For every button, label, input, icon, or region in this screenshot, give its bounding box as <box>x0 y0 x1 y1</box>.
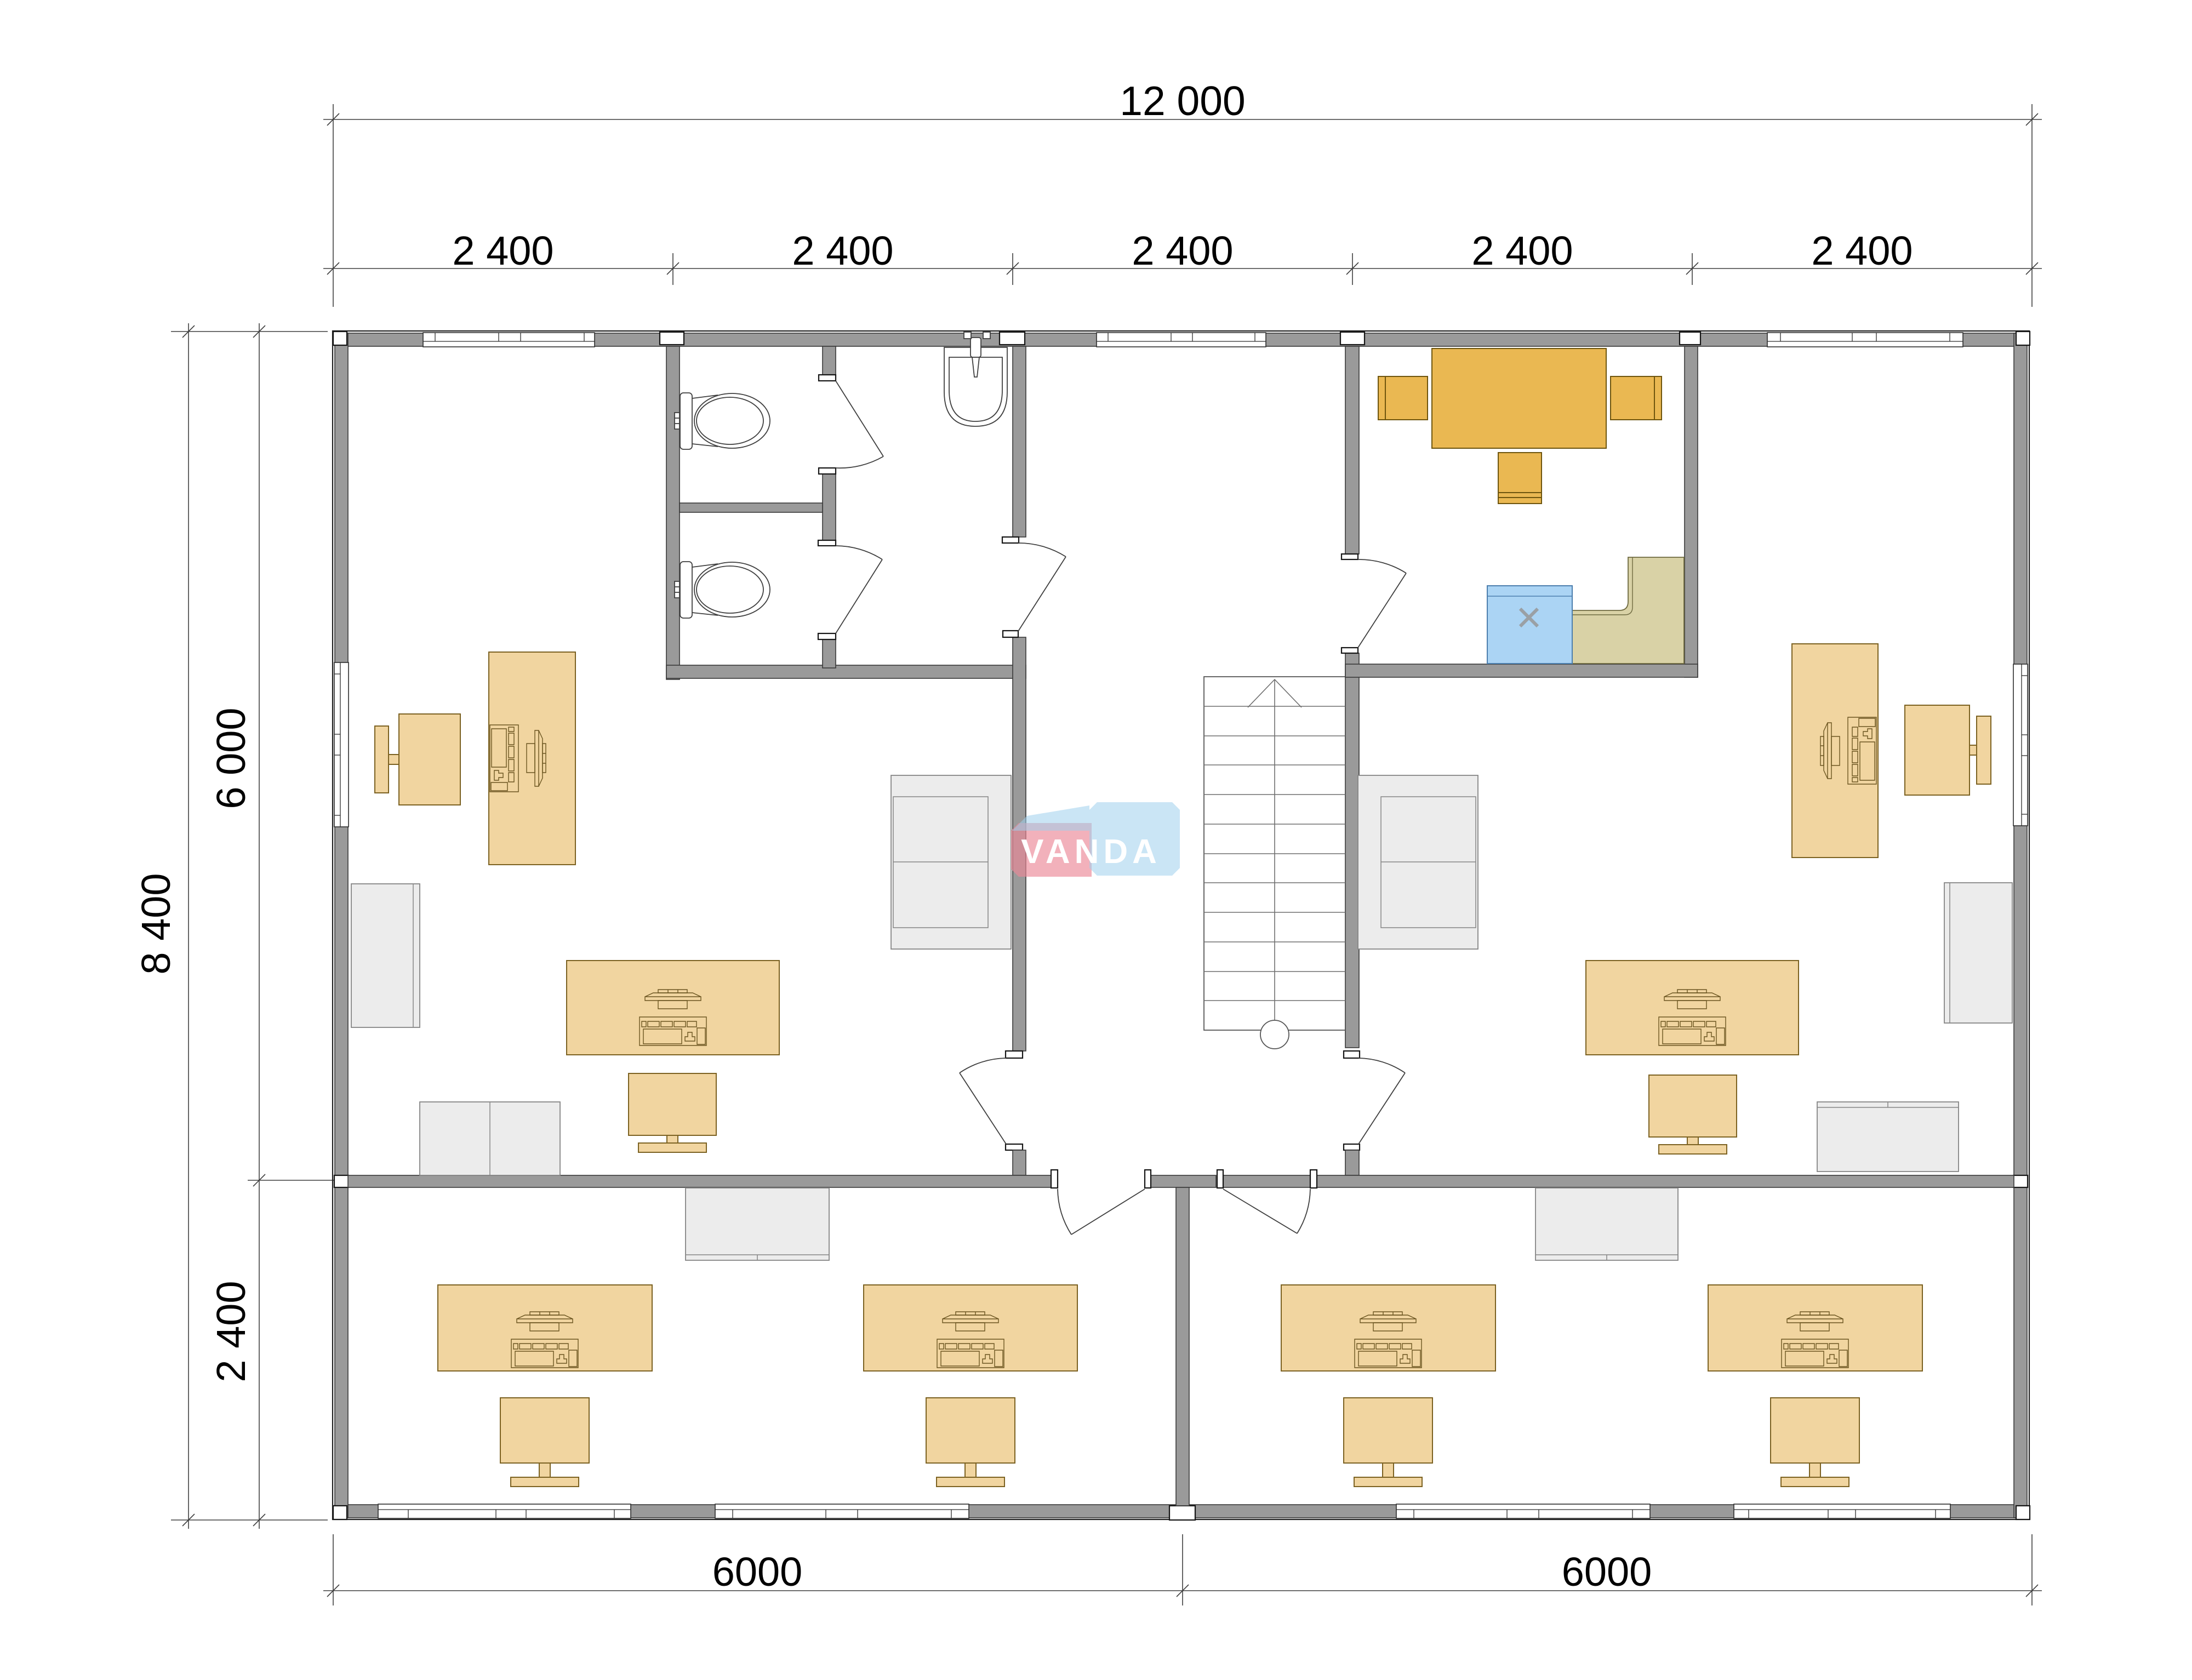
svg-text:8 400: 8 400 <box>133 873 179 974</box>
svg-text:6000: 6000 <box>1562 1549 1652 1595</box>
svg-text:2 400: 2 400 <box>1471 228 1573 273</box>
svg-text:2 400: 2 400 <box>1811 228 1913 273</box>
svg-text:6000: 6000 <box>712 1549 803 1595</box>
svg-text:2 400: 2 400 <box>1132 228 1233 273</box>
svg-text:VANDA: VANDA <box>1021 833 1161 871</box>
svg-text:2 400: 2 400 <box>792 228 893 273</box>
svg-text:2 400: 2 400 <box>452 228 553 273</box>
svg-text:2 400: 2 400 <box>208 1281 254 1382</box>
svg-text:6 000: 6 000 <box>208 707 254 809</box>
svg-text:12 000: 12 000 <box>1120 78 1245 124</box>
